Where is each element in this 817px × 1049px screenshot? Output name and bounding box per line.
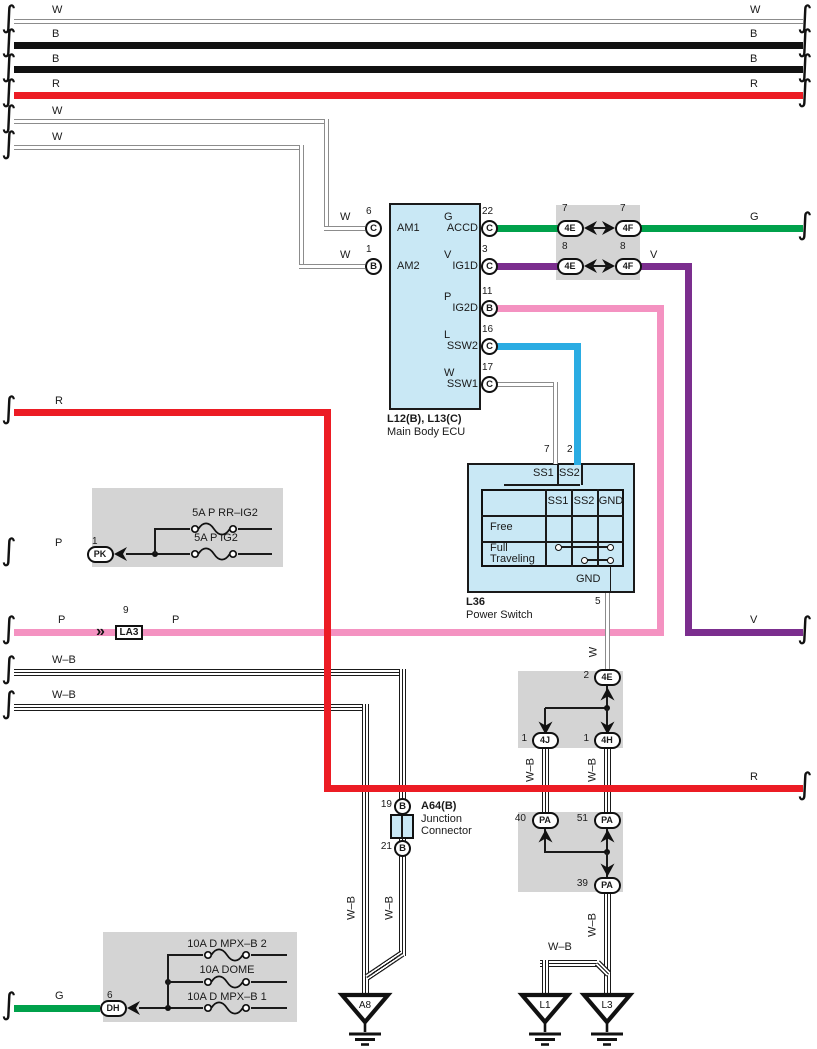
contact-circle bbox=[581, 557, 588, 564]
wire-label: G bbox=[55, 990, 64, 1003]
pair-shaft-1 bbox=[589, 227, 611, 229]
table-col-ss1: SS1 bbox=[548, 495, 569, 508]
connector-pa51: PA bbox=[594, 812, 621, 829]
power-switch-id: L36 bbox=[466, 596, 485, 609]
table-col-gnd: GND bbox=[599, 495, 623, 508]
double-chevron-icon: » bbox=[96, 624, 103, 640]
table-hline1 bbox=[481, 515, 624, 517]
connector-la3: LA3 bbox=[115, 625, 143, 640]
wire-w-gnd5 bbox=[605, 593, 610, 670]
ecu-pin-label-am2: AM2 bbox=[397, 260, 420, 273]
pin-number: 21 bbox=[374, 841, 392, 852]
wire-label: W–B bbox=[52, 689, 76, 702]
wire-b-top2 bbox=[14, 66, 803, 73]
switch-pin-div2 bbox=[581, 464, 583, 485]
connector-pk: PK bbox=[87, 546, 114, 563]
pin-am1: C bbox=[365, 220, 382, 237]
wire-v-mid bbox=[637, 263, 691, 270]
wire-break-icon: ∫ bbox=[797, 614, 813, 644]
fuse-l-tail3 bbox=[251, 1007, 287, 1009]
pa-line-h bbox=[545, 851, 607, 853]
wire-label: G bbox=[750, 211, 759, 224]
junction-connector-divider bbox=[401, 816, 403, 837]
wire-w-am1-h2 bbox=[324, 226, 365, 231]
table-vline1 bbox=[545, 489, 547, 567]
pin-number: 40 bbox=[506, 813, 526, 824]
wire-p-vert bbox=[657, 305, 664, 636]
pin-accd: C bbox=[481, 220, 498, 237]
wire-label: R bbox=[55, 395, 63, 408]
wiring-diagram: 4E 4F 4E 4F PK LA3 4E 4J 4H PA PA PA DH … bbox=[0, 0, 817, 1049]
wire-break-icon: ∫ bbox=[1, 654, 17, 684]
wire-wb-v365 bbox=[362, 704, 369, 995]
wire-w-ssw1 bbox=[497, 382, 558, 387]
pin-number: 7 bbox=[562, 203, 568, 214]
pin-ssw1: C bbox=[481, 376, 498, 393]
wire-wb-l1-v bbox=[542, 960, 549, 996]
wire-label: R bbox=[750, 771, 758, 784]
wire-w-am2-v bbox=[299, 145, 304, 269]
switch-pin-underline bbox=[504, 484, 580, 486]
contact-line-a bbox=[558, 546, 610, 548]
pair-shaft-2 bbox=[589, 265, 611, 267]
wire-break-icon: ∫ bbox=[1, 394, 17, 424]
wire-p-ig2d bbox=[497, 305, 664, 312]
pin-number: 1 bbox=[92, 536, 98, 547]
fuse-l-lead3 bbox=[139, 1007, 203, 1009]
connector-4j: 4J bbox=[532, 732, 559, 749]
pin-number: 6 bbox=[107, 990, 113, 1001]
ground-a8: A8 bbox=[337, 992, 393, 1049]
wire-label: W bbox=[750, 4, 760, 17]
fuse-u-lead2 bbox=[126, 553, 190, 555]
wire-label: W bbox=[52, 4, 62, 17]
wire-r-mid-h bbox=[14, 409, 331, 416]
ground-label: L3 bbox=[601, 1000, 613, 1011]
switch-gnd-label: GND bbox=[576, 573, 600, 586]
pin-number: 5 bbox=[595, 596, 601, 607]
table-col-ss2: SS2 bbox=[574, 495, 595, 508]
switch-pin-ss2: SS2 bbox=[559, 467, 580, 480]
wire-v-right bbox=[685, 629, 804, 636]
wire-label: W bbox=[52, 131, 62, 144]
fuse-u-tail2 bbox=[238, 553, 272, 555]
arrow-icon bbox=[127, 1001, 140, 1015]
pin-number: 17 bbox=[482, 362, 493, 373]
wire-r-top bbox=[14, 92, 803, 99]
table-row-traveling: Traveling bbox=[490, 554, 535, 565]
wire-wb-pa39 bbox=[604, 892, 611, 995]
wire-w-top1 bbox=[14, 19, 803, 24]
table-vline2 bbox=[571, 489, 573, 567]
wire-label: P bbox=[58, 614, 65, 627]
fuse-label-ig2: 5A P IG2 bbox=[194, 532, 238, 545]
pin-am2: B bbox=[365, 258, 382, 275]
wire-label-vertical: W–B bbox=[587, 758, 600, 782]
pin-number: 1 bbox=[571, 733, 589, 744]
arrow-icon bbox=[600, 864, 614, 877]
fuse-label-rr-ig2: 5A P RR–IG2 bbox=[192, 507, 258, 520]
pin-b19: B bbox=[394, 798, 411, 815]
pin-number: 51 bbox=[568, 813, 588, 824]
ecu-name: Main Body ECU bbox=[387, 426, 465, 439]
pin-number: 39 bbox=[568, 878, 588, 889]
wire-label-vertical: W–B bbox=[587, 913, 600, 937]
ecu-pin-label-am1: AM1 bbox=[397, 222, 420, 235]
wire-label: R bbox=[750, 78, 758, 91]
connector-4e-2: 4E bbox=[557, 258, 584, 275]
wire-w-am1-h bbox=[14, 119, 329, 124]
pin-number: 11 bbox=[482, 286, 492, 297]
fuse-label-dome: 10A DOME bbox=[199, 964, 254, 977]
connector-4h: 4H bbox=[594, 732, 621, 749]
wire-label-vertical: W–B bbox=[346, 896, 359, 920]
pin-ig2d: B bbox=[481, 300, 498, 317]
wire-break-icon: ∫ bbox=[1, 536, 17, 566]
pin-number: 1 bbox=[366, 244, 372, 255]
wire-wb-diag-a8 bbox=[365, 950, 405, 980]
wire-label: W–B bbox=[52, 654, 76, 667]
wire-wb-left1 bbox=[14, 669, 405, 676]
fuse-u-lead1 bbox=[155, 528, 190, 530]
fuse-label-mpxb1: 10A D MPX–B 1 bbox=[187, 991, 267, 1004]
connector-4e-mid: 4E bbox=[594, 669, 621, 686]
ecu-pin-label-ssw2: SSW2 bbox=[428, 340, 478, 353]
wire-p-main bbox=[14, 629, 657, 636]
pin-number: 19 bbox=[374, 799, 392, 810]
contact-circle bbox=[555, 544, 562, 551]
ground-label: A8 bbox=[359, 1000, 372, 1011]
pin-number: 8 bbox=[562, 241, 568, 252]
wire-break-icon: ∫ bbox=[1, 689, 17, 719]
fuse-label-mpxb2: 10A D MPX–B 2 bbox=[187, 938, 267, 951]
ground-label: L1 bbox=[539, 1000, 551, 1011]
contact-circle bbox=[607, 544, 614, 551]
wire-l-ssw2 bbox=[497, 343, 580, 350]
wire-label-vertical: W bbox=[588, 647, 601, 657]
pin-number: 7 bbox=[544, 444, 550, 455]
switch-pin-ss1: SS1 bbox=[533, 467, 554, 480]
gnd-exit-line bbox=[610, 567, 612, 593]
connector-pa39: PA bbox=[594, 877, 621, 894]
connector-dh: DH bbox=[100, 1000, 127, 1017]
wire-label-vertical: W–B bbox=[525, 758, 538, 782]
pin-number: 6 bbox=[366, 206, 372, 217]
pin-number: 3 bbox=[482, 244, 488, 255]
wire-label: W–B bbox=[548, 941, 572, 954]
wire-g-accd bbox=[497, 225, 560, 232]
wire-v-vert bbox=[685, 263, 692, 636]
pin-number: 16 bbox=[482, 324, 493, 335]
wire-label: B bbox=[750, 53, 757, 66]
ecu-pin-label-ig1d: IG1D bbox=[428, 260, 478, 273]
wire-label: B bbox=[750, 28, 757, 41]
wire-w-am1-v bbox=[324, 119, 329, 231]
fuse-l-lead2 bbox=[168, 981, 203, 983]
pin-number: 1 bbox=[509, 733, 527, 744]
connector-4f-2: 4F bbox=[615, 258, 642, 275]
wire-g-right bbox=[637, 225, 803, 232]
wire-label: P bbox=[172, 614, 179, 627]
pin-number: 9 bbox=[123, 605, 129, 616]
pin-number: 22 bbox=[482, 206, 493, 217]
pin-number: 7 bbox=[620, 203, 626, 214]
arrow-icon bbox=[600, 688, 614, 701]
wire-label: V bbox=[650, 249, 657, 262]
wire-label: B bbox=[52, 53, 59, 66]
wire-break-icon: ∫ bbox=[1, 990, 17, 1020]
fuse-u-branch bbox=[154, 528, 156, 554]
ecu-id: L12(B), L13(C) bbox=[387, 413, 462, 426]
wire-b-top1 bbox=[14, 42, 803, 49]
table-row-free: Free bbox=[490, 521, 513, 534]
pin-ssw2: C bbox=[481, 338, 498, 355]
contact-circle bbox=[607, 557, 614, 564]
wire-w-ssw1-v bbox=[553, 382, 558, 464]
wire-break-icon: ∫ bbox=[1, 614, 17, 644]
connector-4f-1: 4F bbox=[615, 220, 642, 237]
wire-wb-4h bbox=[604, 748, 611, 812]
wire-label-vertical: W–B bbox=[384, 896, 397, 920]
wire-label: B bbox=[52, 28, 59, 41]
connector-4e-1: 4E bbox=[557, 220, 584, 237]
fuse-l-tail1 bbox=[251, 954, 287, 956]
power-switch-name: Power Switch bbox=[466, 609, 533, 622]
ecu-pin-label-ssw1: SSW1 bbox=[428, 378, 478, 391]
wire-break-icon: ∫ bbox=[797, 77, 813, 107]
wire-g-bottom bbox=[14, 1005, 100, 1012]
wire-w-am2-h bbox=[14, 145, 304, 150]
wire-break-icon: ∫ bbox=[1, 129, 17, 159]
pin-number: 2 bbox=[567, 444, 573, 455]
pin-number: 2 bbox=[571, 670, 589, 681]
wire-label: P bbox=[55, 537, 62, 550]
wire-wb-l1-link bbox=[540, 960, 597, 967]
wire-v-ig1d bbox=[497, 263, 560, 270]
wire-label: V bbox=[750, 614, 757, 627]
wire-label: W bbox=[340, 211, 350, 224]
wire-break-icon: ∫ bbox=[797, 210, 813, 240]
connector-pa40: PA bbox=[532, 812, 559, 829]
fuse-u-tail1 bbox=[238, 528, 272, 530]
fuse-icon-ig2 bbox=[190, 546, 238, 562]
arrow-icon bbox=[600, 830, 614, 843]
ecu-pin-label-accd: ACCD bbox=[428, 222, 478, 235]
wire-wb-4j bbox=[542, 748, 549, 812]
fuse-l-lead1 bbox=[168, 954, 203, 956]
wire-r-bottom bbox=[324, 785, 804, 792]
wire-label: R bbox=[52, 78, 60, 91]
wire-r-vert bbox=[324, 409, 331, 792]
pin-b21: B bbox=[394, 840, 411, 857]
junction-connector-id: A64(B) bbox=[421, 800, 456, 813]
ground-l1: L1 bbox=[517, 992, 573, 1049]
mid-line-h bbox=[545, 707, 607, 709]
ecu-pin-label-ig2d: IG2D bbox=[428, 302, 478, 315]
fuse-l-tail2 bbox=[251, 981, 287, 983]
arrow-icon bbox=[538, 830, 552, 843]
pin-number: 8 bbox=[620, 241, 626, 252]
wire-l-vert bbox=[574, 343, 581, 465]
ground-l3: L3 bbox=[579, 992, 635, 1049]
wire-label: W bbox=[52, 105, 62, 118]
wire-wb-left2 bbox=[14, 704, 368, 711]
wire-label: W bbox=[340, 249, 350, 262]
wire-w-am2-h2 bbox=[299, 264, 365, 269]
junction-connector-name2: Connector bbox=[421, 825, 472, 838]
wire-break-icon: ∫ bbox=[797, 770, 813, 800]
pin-ig1d: C bbox=[481, 258, 498, 275]
arrow-icon bbox=[114, 547, 127, 561]
